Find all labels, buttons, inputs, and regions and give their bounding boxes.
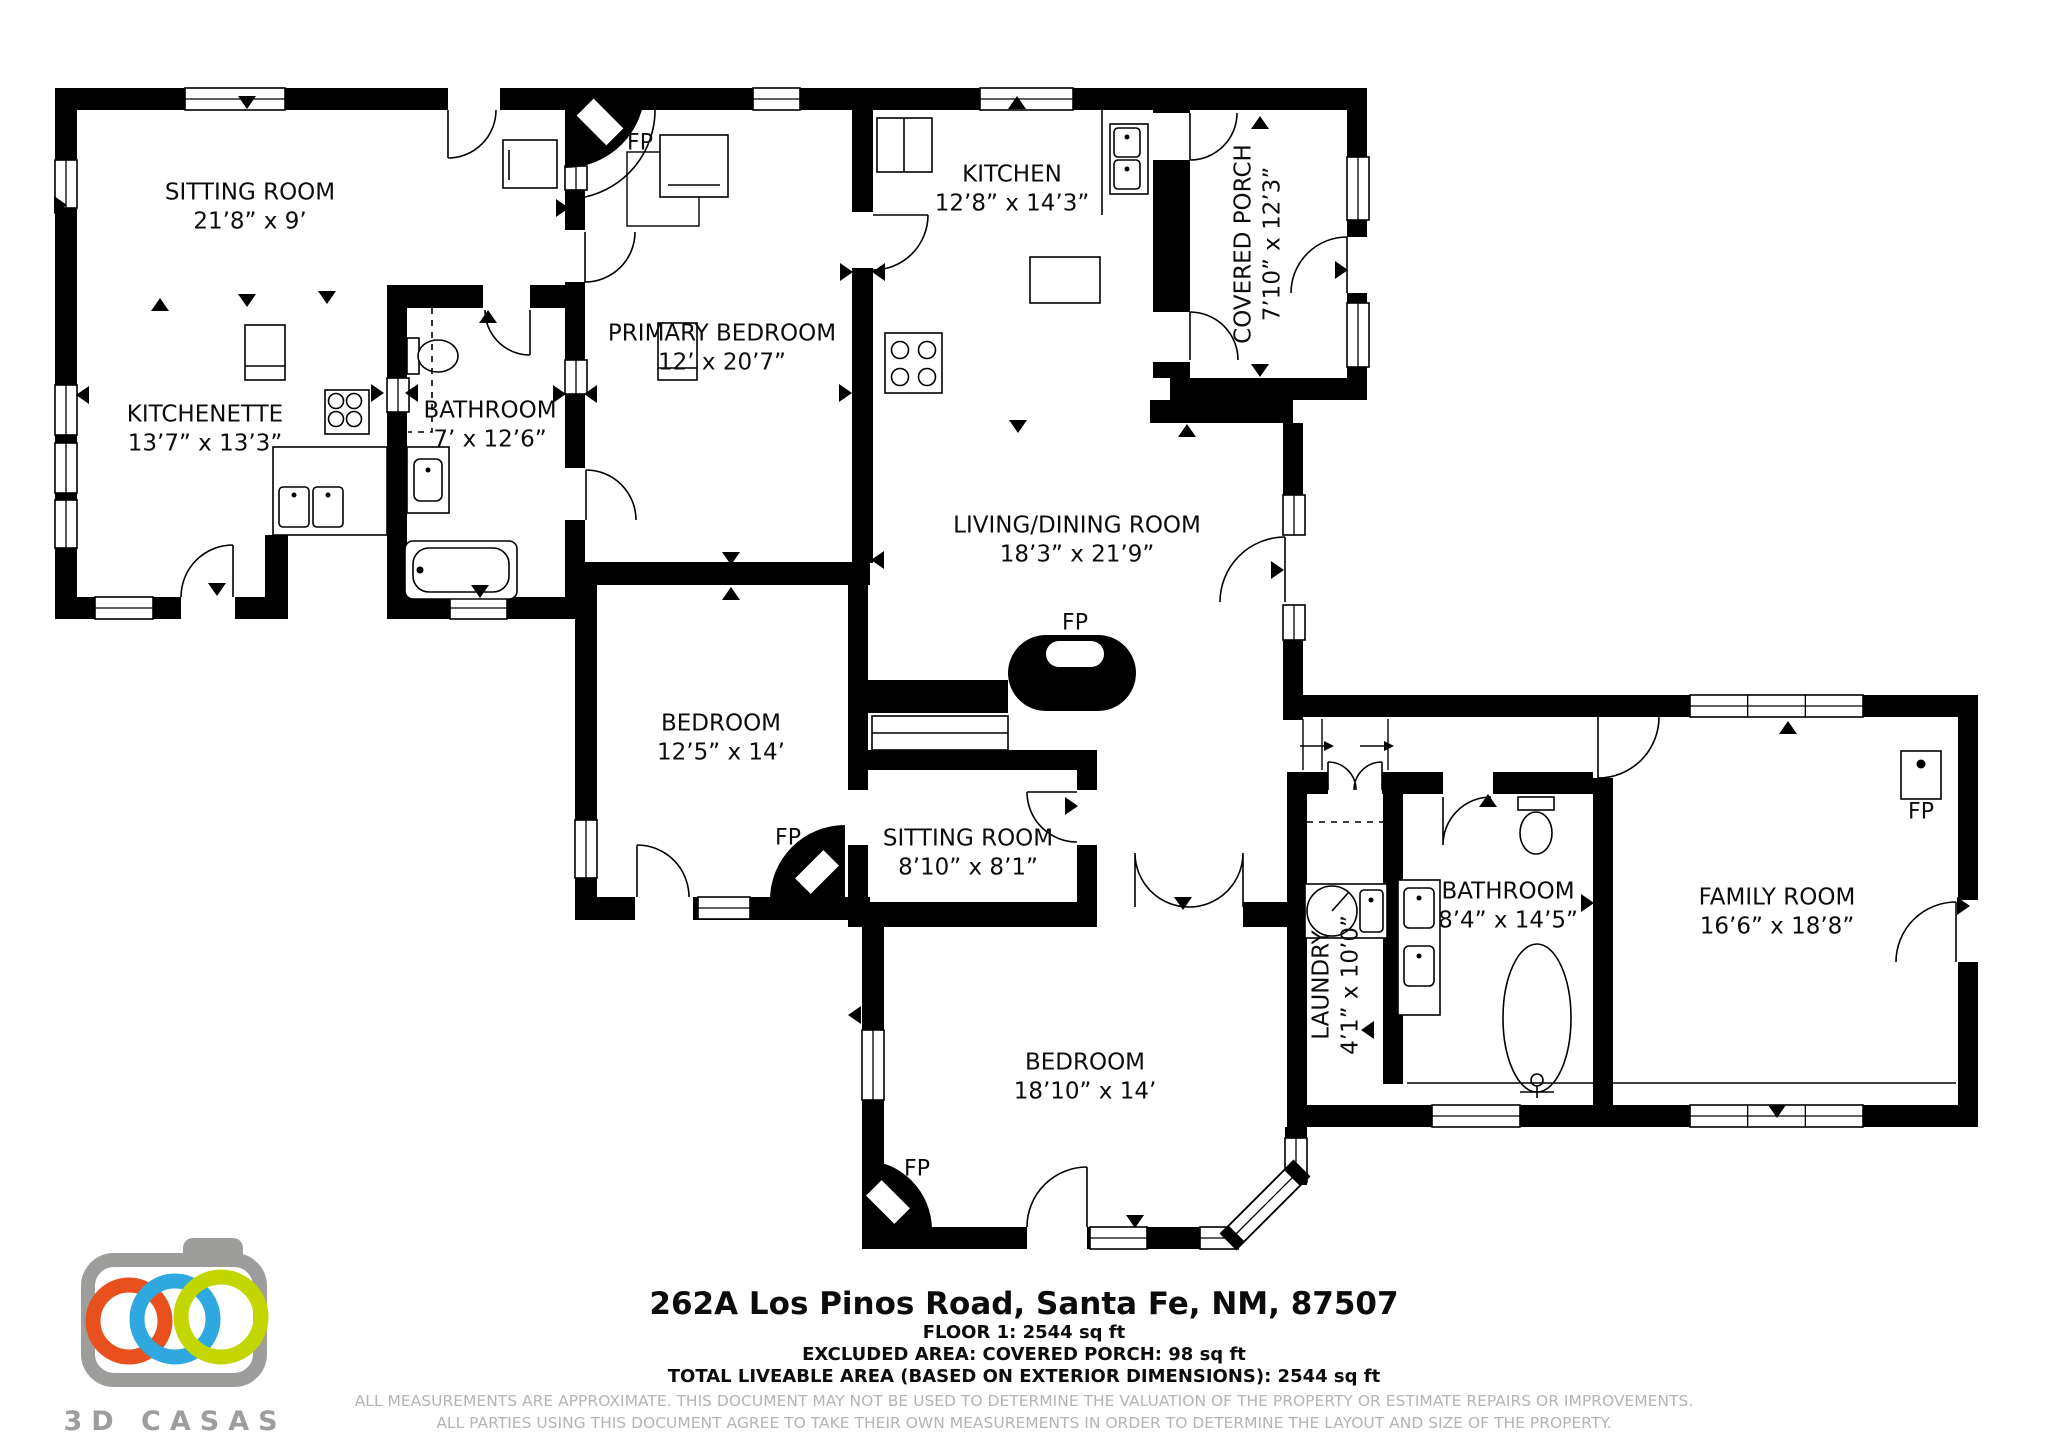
bay-window (1228, 1168, 1302, 1242)
floorplan-page: SITTING ROOM21’8” x 9’KITCHENETTE13’7” x… (0, 0, 2048, 1448)
window (753, 88, 800, 110)
window (55, 500, 77, 548)
opening-marker (1126, 1215, 1144, 1228)
window (185, 88, 285, 110)
opening-marker (553, 385, 566, 403)
opening-marker (1581, 894, 1594, 912)
door-porch-left-bottom (1190, 312, 1238, 360)
floorplan-svg (0, 0, 2048, 1448)
opening-marker (1251, 364, 1269, 377)
kitchen-stove (885, 333, 942, 393)
fireplace-family-dot (1917, 760, 1926, 769)
address-title: 262A Los Pinos Road, Santa Fe, NM, 87507 (0, 1286, 2048, 1322)
window (1090, 1227, 1147, 1249)
excluded-area-line: EXCLUDED AREA: COVERED PORCH: 98 sq ft (0, 1344, 2048, 1365)
door-kitchen (873, 215, 928, 270)
sitting-cabinet (503, 140, 557, 188)
opening-marker (479, 310, 497, 323)
opening-marker (1251, 116, 1269, 129)
opening-marker (318, 291, 336, 304)
window (1283, 605, 1305, 640)
disclaimer-line-1: ALL MEASUREMENTS ARE APPROXIMATE. THIS D… (0, 1392, 2048, 1410)
opening-marker (839, 384, 852, 402)
opening-marker (1335, 261, 1348, 279)
fireplaces-layer (565, 88, 1941, 1230)
door-kitchenette-exterior (181, 545, 233, 597)
opening-marker (76, 386, 89, 404)
bathroom-2-tub (1503, 944, 1571, 1092)
window (565, 360, 587, 394)
opening-marker (1779, 721, 1797, 734)
opening-marker (1479, 794, 1497, 807)
floor-area-line: FLOOR 1: 2544 sq ft (0, 1322, 2048, 1343)
fireplace-family (1901, 751, 1941, 799)
brand-name: 3D CASAS (60, 1406, 290, 1437)
door-sitting-primary (585, 232, 635, 282)
opening-marker (208, 583, 226, 596)
window (1432, 1105, 1520, 1127)
opening-marker (238, 294, 256, 307)
window (1347, 157, 1369, 220)
window (1347, 303, 1369, 367)
window (862, 1030, 884, 1100)
window (1690, 695, 1863, 717)
primary-wardrobe (660, 135, 728, 197)
door-family-right (1896, 902, 1956, 962)
door-bedroom-1-exterior (637, 845, 689, 897)
kitchen-island (1030, 257, 1100, 303)
window (575, 820, 597, 878)
opening-marker (722, 587, 740, 600)
opening-marker (872, 263, 885, 281)
window (565, 166, 587, 190)
bathroom-1-toilet-bowl (418, 340, 458, 372)
opening-marker (1178, 424, 1196, 437)
opening-marker (1361, 1021, 1374, 1039)
firebox-living (1046, 641, 1104, 667)
window (55, 385, 77, 435)
opening-marker (840, 263, 853, 281)
primary-nightstand (658, 323, 697, 380)
opening-marker (1065, 797, 1078, 815)
window (1283, 495, 1305, 535)
bathroom-2-toilet-tank (1518, 797, 1554, 810)
disclaimer-line-2: ALL PARTIES USING THIS DOCUMENT AGREE TO… (0, 1414, 2048, 1432)
bathroom-1-tub-inner (413, 548, 509, 592)
laundry-sink (1360, 890, 1383, 932)
opening-marker (151, 298, 169, 311)
total-area-line: TOTAL LIVEABLE AREA (BASED ON EXTERIOR D… (0, 1366, 2048, 1387)
opening-marker (848, 1006, 861, 1024)
door-porch-left-top (1190, 113, 1237, 160)
window (698, 897, 750, 919)
door-bedroom-2-exterior (1027, 1167, 1087, 1227)
window (95, 597, 153, 619)
window (980, 88, 1073, 110)
windows-layer (55, 88, 1863, 1249)
bathroom-1-tub-faucet (417, 567, 424, 574)
door-sitting-1-top (448, 110, 496, 158)
opening-marker (1271, 561, 1284, 579)
door-bathroom-1-primary (586, 470, 636, 520)
window (450, 597, 507, 619)
opening-marker (1009, 420, 1027, 433)
kitchenette-cabinet (245, 325, 285, 380)
door-sitting-2-right (1027, 792, 1077, 842)
window (55, 443, 77, 493)
window (387, 378, 409, 412)
bathroom-2-toilet-bowl (1520, 812, 1552, 854)
opening-marker (371, 384, 384, 402)
bathroom-1-sink (414, 459, 442, 501)
